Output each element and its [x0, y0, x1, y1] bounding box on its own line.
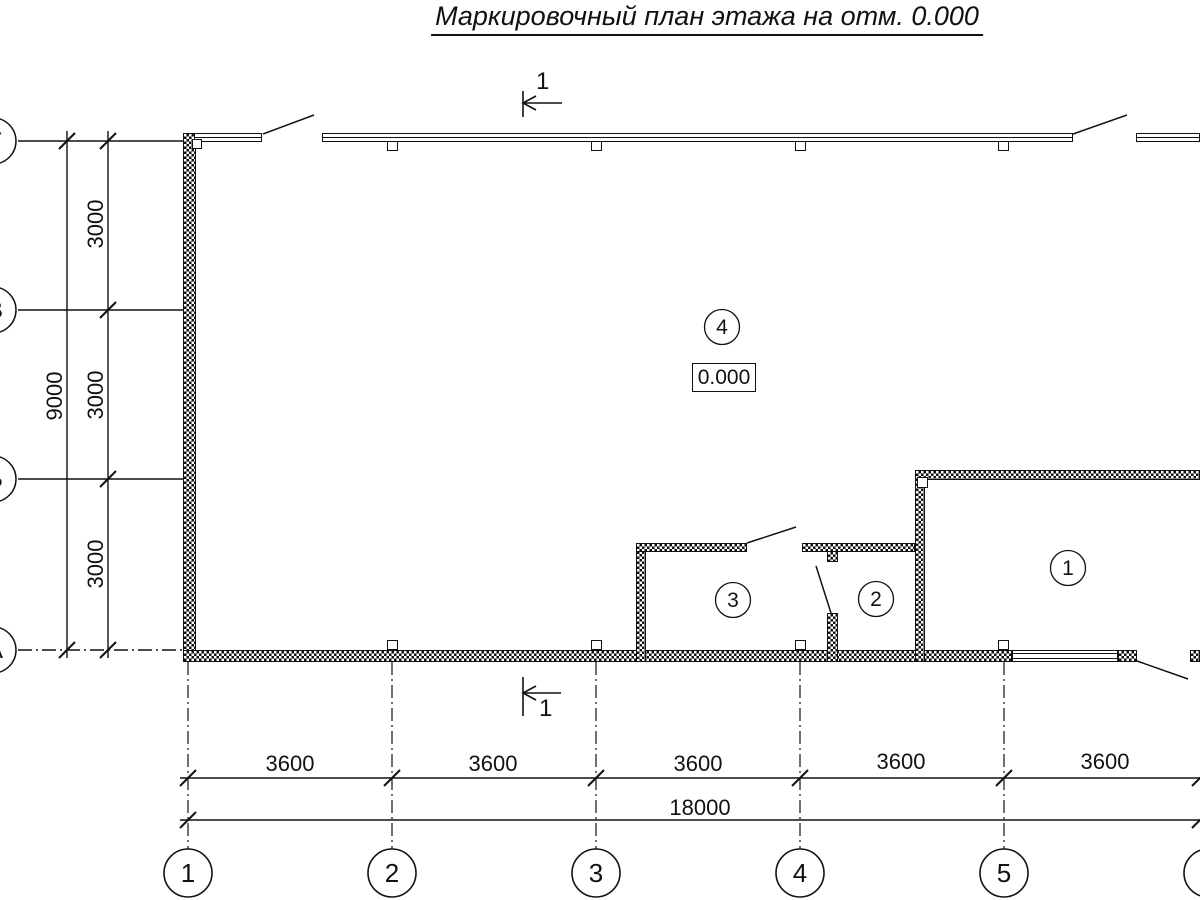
bottom-dimension-lines — [180, 778, 1200, 820]
axis-bubbles-bottom — [164, 849, 1200, 897]
room-tag-numbers: 4 3 2 1 — [716, 316, 1074, 612]
axis-number: 5 — [997, 858, 1011, 888]
axis-letter: А — [0, 637, 3, 664]
room-number: 4 — [716, 316, 728, 339]
axis-bubbles-left — [0, 118, 16, 673]
grid-column-lines — [188, 662, 1004, 849]
axis-number: 2 — [385, 858, 399, 888]
axis-letter: Б — [0, 466, 3, 493]
dim-ticks — [59, 133, 1200, 828]
grid-row-lines — [18, 141, 183, 650]
axis-letter: В — [0, 297, 3, 324]
section-mark-bottom — [523, 677, 561, 716]
axis-circle-row-g — [0, 118, 16, 164]
floor-plan-drawing: Маркировочный план этажа на отм. 0.000 0… — [0, 0, 1200, 900]
room-tags — [705, 310, 1086, 618]
axis-number: 3 — [589, 858, 603, 888]
axis-numbers-bottom: 1 2 3 4 5 — [181, 858, 1011, 888]
axis-number: 1 — [181, 858, 195, 888]
section-mark-top — [523, 91, 562, 117]
room-number: 1 — [1062, 557, 1074, 580]
plan-linework: 4 3 2 1 1 2 3 4 5 Г — [0, 0, 1200, 900]
door-swing-line — [1073, 115, 1127, 134]
axis-letters-left: Г В Б А — [0, 128, 3, 664]
left-dimension-lines — [67, 131, 108, 658]
axis-circle-6 — [1184, 849, 1200, 897]
axis-number: 4 — [793, 858, 807, 888]
room-number: 3 — [727, 589, 739, 612]
door-swing-line — [747, 527, 796, 543]
door-swing-line — [816, 566, 831, 613]
door-swing-line — [263, 115, 314, 134]
door-swing-line — [1137, 661, 1188, 679]
axis-letter: Г — [0, 128, 2, 155]
room-number: 2 — [870, 588, 882, 611]
